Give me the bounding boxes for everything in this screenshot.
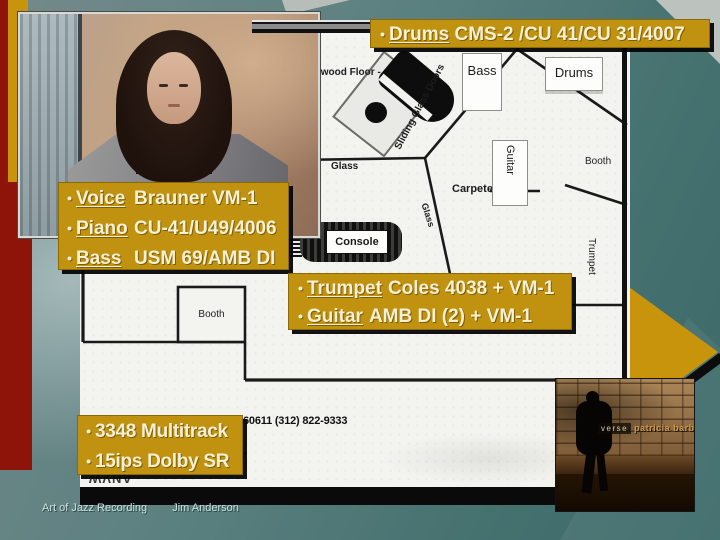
artist-eye-right	[179, 84, 188, 87]
guitar-desc: AMB DI (2) + VM-1	[369, 306, 532, 327]
album-cover: versepatricia barber	[555, 378, 695, 512]
bullet-icon: •	[294, 303, 307, 331]
bullet-icon: •	[63, 185, 76, 214]
drums-position-box: Drums	[545, 57, 603, 91]
bullet-icon: •	[294, 275, 307, 303]
slide: Console Hardwood Floor - Sliding Glass D…	[0, 0, 720, 540]
voice-line: •VoiceBrauner VM-1	[63, 184, 288, 214]
bass-term: Bass	[76, 244, 134, 273]
dolby-line: •15ips Dolby SR	[82, 447, 242, 477]
bullet-icon: •	[63, 245, 76, 274]
guitar-line: •GuitarAMB DI (2) + VM-1	[294, 303, 571, 331]
piano-term: Piano	[76, 214, 134, 243]
drums-callout-line: •Drums CMS-2 /CU 41/CU 31/4007	[376, 20, 709, 50]
trumpet-term: Trumpet	[307, 275, 382, 303]
album-title: verse	[598, 423, 631, 434]
guitar-term: Guitar	[307, 303, 363, 331]
bullet-icon: •	[82, 448, 95, 477]
voice-desc: Brauner VM-1	[134, 188, 258, 209]
piano-desc: CU-41/U49/4006	[134, 218, 277, 239]
trumpet-position-label: Trumpet	[586, 238, 597, 296]
artist-face	[147, 52, 201, 124]
overdubs-callout: •TrumpetColes 4038 + VM-1 •GuitarAMB DI …	[288, 273, 572, 330]
album-title-band: versepatricia barber	[556, 423, 694, 433]
bullet-icon: •	[63, 215, 76, 244]
bass-desc: USM 69/AMB DI	[134, 248, 275, 269]
footer-course-title: Art of Jazz Recording	[42, 502, 147, 514]
guitar-position-box: Guitar	[492, 140, 528, 206]
footer: Art of Jazz Recording Jim Anderson	[42, 502, 239, 514]
booth-left-label: Booth	[178, 287, 245, 342]
footer-author: Jim Anderson	[172, 502, 239, 514]
left-maroon-strip	[0, 0, 8, 470]
booth-right-label: Booth	[585, 156, 611, 167]
console-label: Console	[326, 230, 388, 254]
artist-eye-left	[159, 84, 168, 87]
dolby-text: 15ips Dolby SR	[95, 451, 229, 472]
drums-term: Drums	[389, 24, 449, 45]
drums-desc: CMS-2 /CU 41/CU 31/4007	[454, 24, 684, 45]
piano-stool-icon	[365, 102, 387, 123]
album-bench	[556, 456, 694, 474]
album-floor	[556, 474, 694, 511]
bass-position-box: Bass	[462, 53, 502, 111]
album-artist: patricia barber	[634, 423, 695, 433]
bullet-icon: •	[376, 21, 389, 50]
tape-callout: •3348 Multitrack •15ips Dolby SR	[77, 415, 243, 475]
trumpet-line: •TrumpetColes 4038 + VM-1	[294, 275, 571, 303]
sources-callout: •VoiceBrauner VM-1 •PianoCU-41/U49/4006 …	[58, 182, 289, 270]
artist-mouth	[168, 104, 180, 107]
trumpet-desc: Coles 4038 + VM-1	[388, 278, 554, 299]
drums-callout: •Drums CMS-2 /CU 41/CU 31/4007	[370, 19, 710, 48]
guitar-position-label: Guitar	[504, 145, 516, 175]
voice-term: Voice	[76, 184, 134, 213]
glass-wall-label: Glass	[331, 161, 358, 172]
bullet-icon: •	[82, 418, 95, 447]
piano-line: •PianoCU-41/U49/4006	[63, 214, 288, 244]
studio-phone-text: 60611 (312) 822-9333	[243, 415, 347, 427]
bass-line: •BassUSM 69/AMB DI	[63, 244, 288, 274]
multitrack-line: •3348 Multitrack	[82, 417, 242, 447]
multitrack-text: 3348 Multitrack	[95, 421, 228, 442]
